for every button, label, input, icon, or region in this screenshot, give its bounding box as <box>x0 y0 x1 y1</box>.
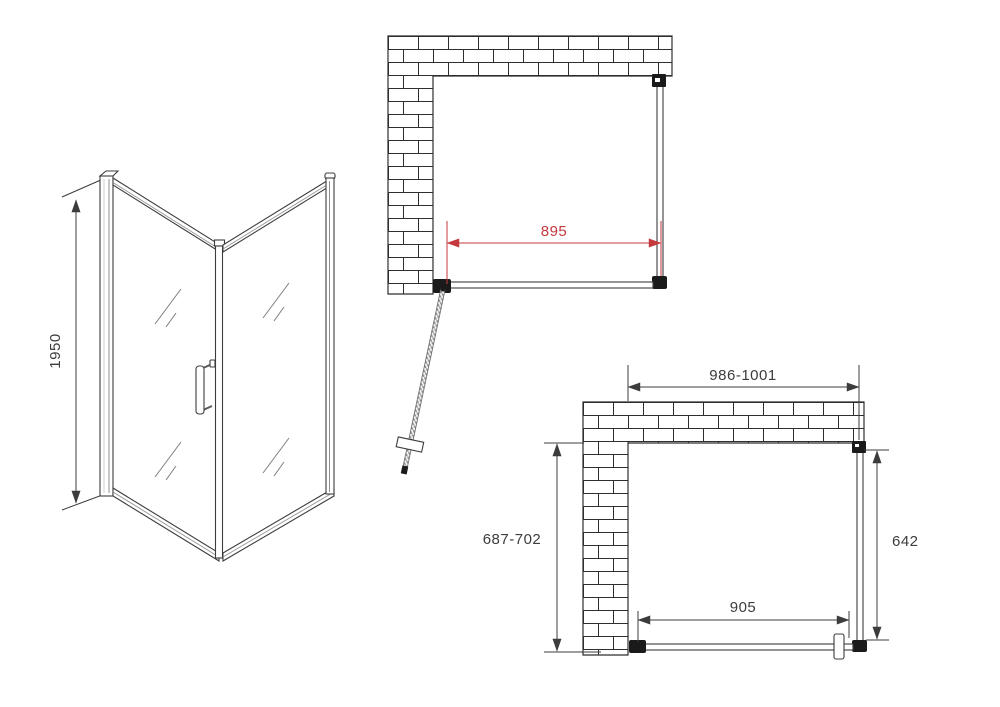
right-depth-dimension: 642 <box>864 450 919 640</box>
door-width-dimension: 895 <box>447 221 661 284</box>
fixed-side-panel <box>652 74 667 289</box>
dim-extension-top <box>62 179 103 197</box>
open-door-leaf <box>391 284 456 477</box>
dim-label-642: 642 <box>892 533 919 550</box>
open-door-handle <box>396 437 424 452</box>
dim-extension-bottom <box>62 494 105 510</box>
side-panel-end-profile <box>325 173 335 494</box>
fixed-side-panel <box>852 441 867 652</box>
dim-label-895: 895 <box>541 223 568 240</box>
door-threshold-rail <box>433 279 653 293</box>
dim-label-986-1001: 986-1001 <box>709 367 776 384</box>
door-handle <box>196 360 215 414</box>
dim-label-905: 905 <box>730 599 757 616</box>
shower-enclosure-drawing: 1950 <box>0 0 1000 707</box>
door-width-closed-dimension: 905 <box>638 599 849 642</box>
technical-drawing-canvas: 1950 <box>0 0 1000 707</box>
corner-post <box>215 240 225 558</box>
dim-label-687-702: 687-702 <box>483 531 542 548</box>
brick-wall <box>388 36 672 294</box>
hinge-wall-profile <box>100 171 118 496</box>
brick-wall <box>583 402 864 655</box>
dim-label-1950: 1950 <box>47 333 64 368</box>
isometric-height-dimension: 1950 <box>47 179 105 510</box>
side-panel-frame <box>223 179 334 561</box>
isometric-view: 1950 <box>47 171 335 561</box>
closed-door-rail <box>629 634 853 659</box>
door-handle-plan <box>834 634 844 659</box>
plan-view-door-closed: 986-1001 687-702 642 905 <box>483 365 919 659</box>
